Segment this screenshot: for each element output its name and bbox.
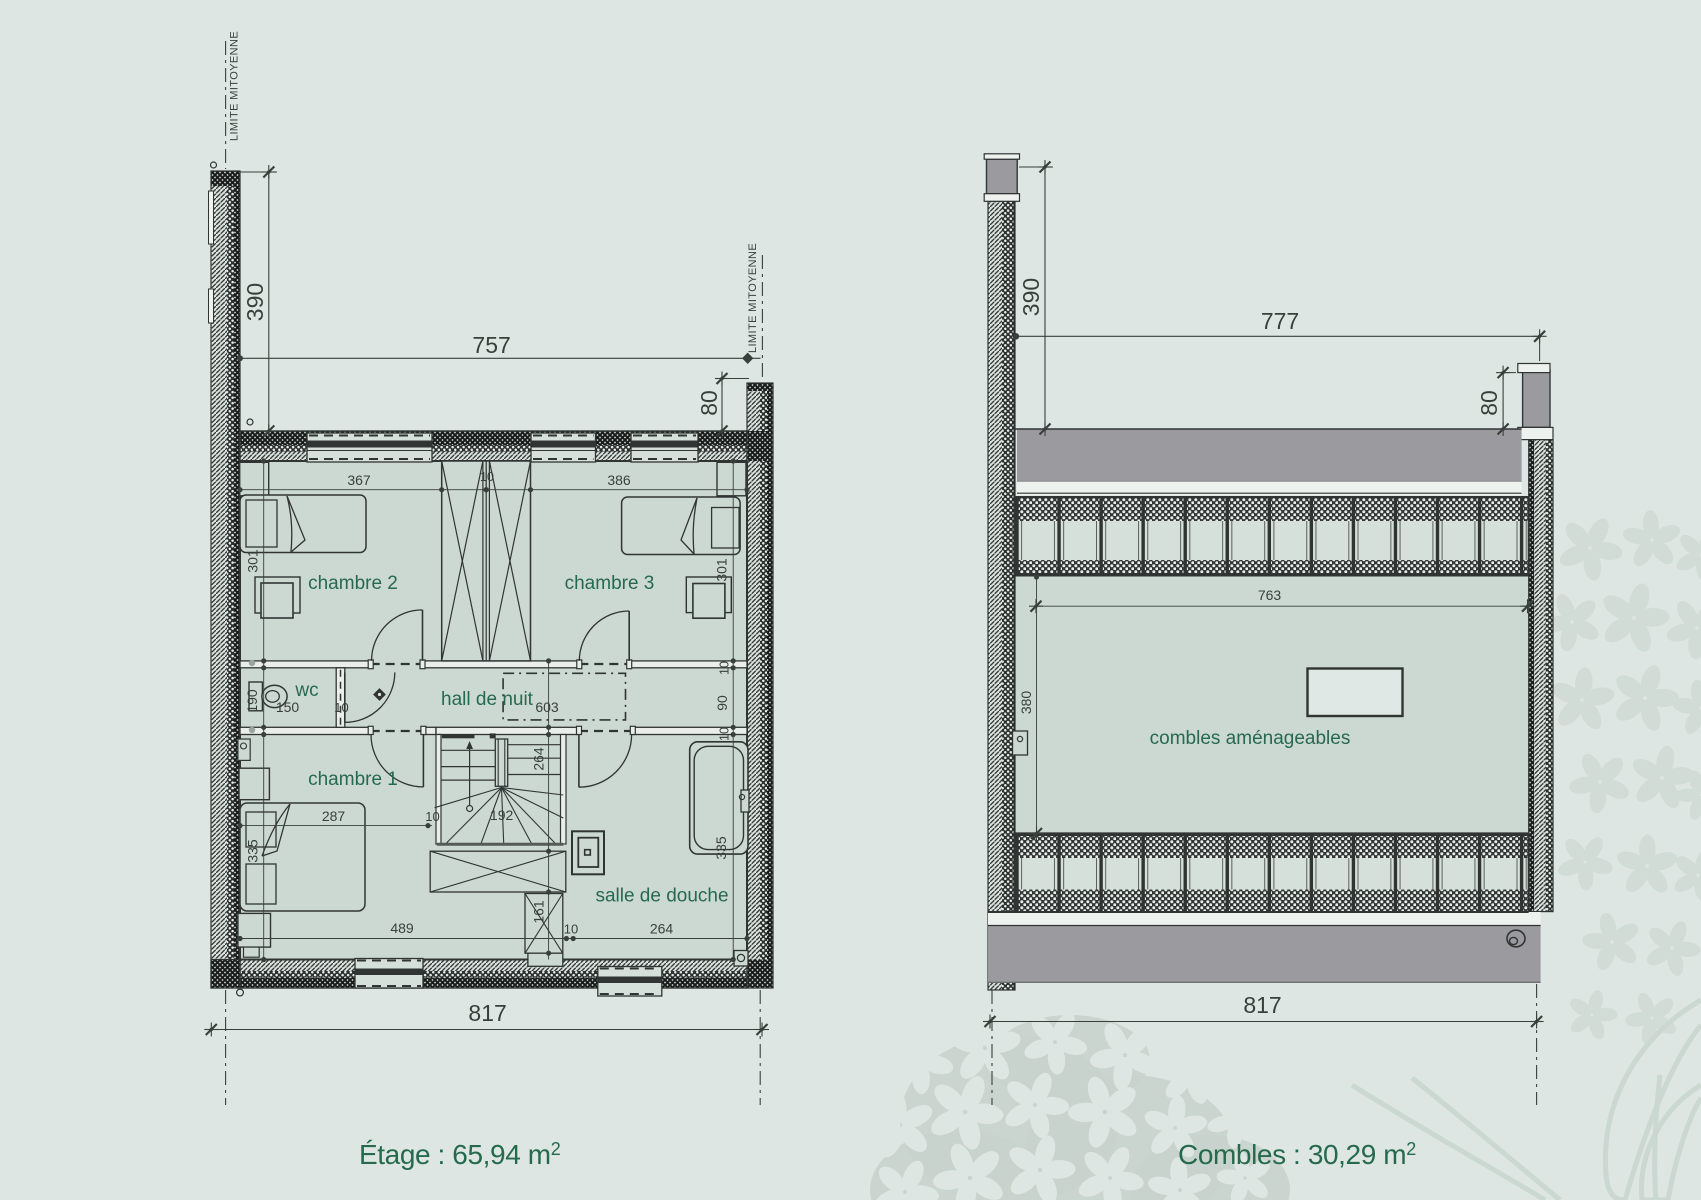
svg-text:Étage : 65,94 m2: Étage : 65,94 m2: [359, 1139, 561, 1170]
svg-text:10: 10: [564, 922, 578, 937]
svg-text:757: 757: [472, 332, 510, 358]
svg-text:301: 301: [714, 558, 730, 582]
svg-text:763: 763: [1258, 587, 1282, 603]
svg-text:335: 335: [245, 839, 261, 863]
svg-text:LIMITE MITOYENNE: LIMITE MITOYENNE: [747, 243, 759, 353]
svg-text:817: 817: [1243, 992, 1281, 1018]
svg-text:10: 10: [334, 700, 348, 715]
svg-text:10: 10: [718, 727, 732, 741]
svg-text:264: 264: [650, 921, 674, 937]
svg-text:90: 90: [714, 695, 730, 711]
svg-text:390: 390: [1018, 278, 1044, 316]
svg-text:603: 603: [535, 699, 559, 715]
svg-text:LIMITE MITOYENNE: LIMITE MITOYENNE: [228, 31, 240, 141]
svg-text:chambre 2: chambre 2: [308, 573, 398, 594]
svg-text:wc: wc: [294, 680, 318, 701]
svg-text:777: 777: [1261, 308, 1299, 334]
svg-text:Combles : 30,29 m2: Combles : 30,29 m2: [1178, 1139, 1416, 1170]
svg-text:80: 80: [696, 390, 722, 416]
svg-text:chambre 1: chambre 1: [308, 769, 398, 790]
svg-text:190: 190: [244, 689, 260, 713]
svg-text:367: 367: [347, 472, 371, 488]
svg-text:chambre 3: chambre 3: [565, 573, 655, 594]
svg-text:380: 380: [1018, 691, 1034, 715]
svg-text:salle de douche: salle de douche: [595, 886, 728, 907]
svg-text:10: 10: [480, 470, 494, 484]
svg-text:161: 161: [531, 900, 547, 924]
svg-text:10: 10: [425, 809, 439, 824]
svg-text:80: 80: [1476, 390, 1502, 416]
svg-text:combles aménageables: combles aménageables: [1150, 728, 1351, 749]
svg-text:386: 386: [607, 472, 631, 488]
svg-text:817: 817: [468, 1000, 506, 1026]
svg-text:10: 10: [718, 661, 732, 675]
svg-text:192: 192: [490, 807, 514, 823]
svg-text:335: 335: [713, 836, 729, 860]
svg-text:150: 150: [276, 699, 300, 715]
svg-text:301: 301: [245, 549, 261, 573]
svg-text:390: 390: [242, 283, 268, 321]
svg-text:264: 264: [531, 747, 547, 771]
svg-text:hall de nuit: hall de nuit: [441, 689, 534, 710]
svg-text:489: 489: [390, 920, 414, 936]
svg-text:287: 287: [322, 808, 346, 824]
